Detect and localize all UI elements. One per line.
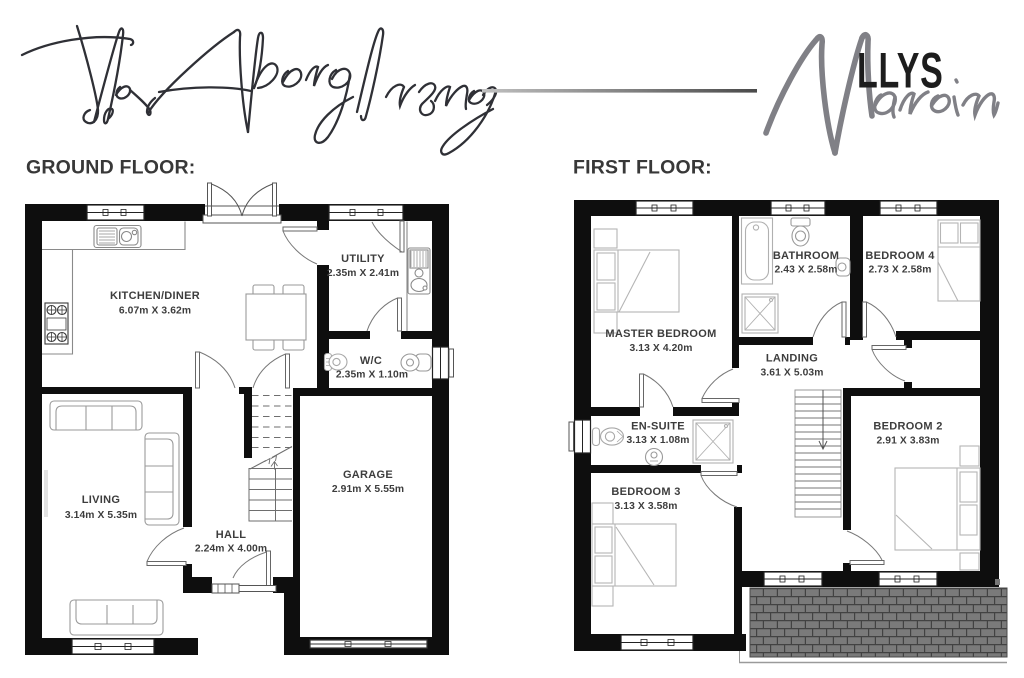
svg-text:W/C: W/C <box>360 355 382 367</box>
svg-text:BATHROOM: BATHROOM <box>773 250 839 262</box>
svg-text:FIRST FLOOR:: FIRST FLOOR: <box>573 157 712 179</box>
svg-text:LIVING: LIVING <box>82 494 120 506</box>
svg-text:2.91 X 3.83m: 2.91 X 3.83m <box>876 436 939 447</box>
svg-text:HALL: HALL <box>216 529 247 541</box>
svg-text:UTILITY: UTILITY <box>341 253 385 265</box>
svg-text:BEDROOM 3: BEDROOM 3 <box>611 486 680 498</box>
svg-text:2.35m X 2.41m: 2.35m X 2.41m <box>327 268 399 279</box>
svg-text:2.43 X 2.58m: 2.43 X 2.58m <box>774 265 837 276</box>
svg-text:3.14m X 5.35m: 3.14m X 5.35m <box>65 510 137 521</box>
svg-text:3.13 X 4.20m: 3.13 X 4.20m <box>629 343 692 354</box>
svg-text:KITCHEN/DINER: KITCHEN/DINER <box>110 290 200 302</box>
svg-text:GARAGE: GARAGE <box>343 469 393 481</box>
svg-text:6.07m X 3.62m: 6.07m X 3.62m <box>119 306 191 317</box>
svg-text:2.24m X 4.00m: 2.24m X 4.00m <box>195 544 267 555</box>
svg-text:LANDING: LANDING <box>766 353 818 365</box>
svg-text:2.35m X 1.10m: 2.35m X 1.10m <box>336 370 408 381</box>
svg-text:2.73 X 2.58m: 2.73 X 2.58m <box>868 265 931 276</box>
svg-text:MASTER BEDROOM: MASTER BEDROOM <box>605 328 716 340</box>
svg-text:3.13 X 3.58m: 3.13 X 3.58m <box>614 501 677 512</box>
svg-text:GROUND FLOOR:: GROUND FLOOR: <box>26 157 195 179</box>
svg-text:BEDROOM 4: BEDROOM 4 <box>865 250 935 262</box>
svg-text:3.13 X 1.08m: 3.13 X 1.08m <box>626 435 689 446</box>
svg-text:BEDROOM 2: BEDROOM 2 <box>873 421 942 433</box>
svg-text:3.61 X 5.03m: 3.61 X 5.03m <box>760 368 823 379</box>
svg-text:2.91m X 5.55m: 2.91m X 5.55m <box>332 484 404 495</box>
svg-text:EN-SUITE: EN-SUITE <box>631 421 685 433</box>
svg-text:LLYS: LLYS <box>857 43 943 99</box>
